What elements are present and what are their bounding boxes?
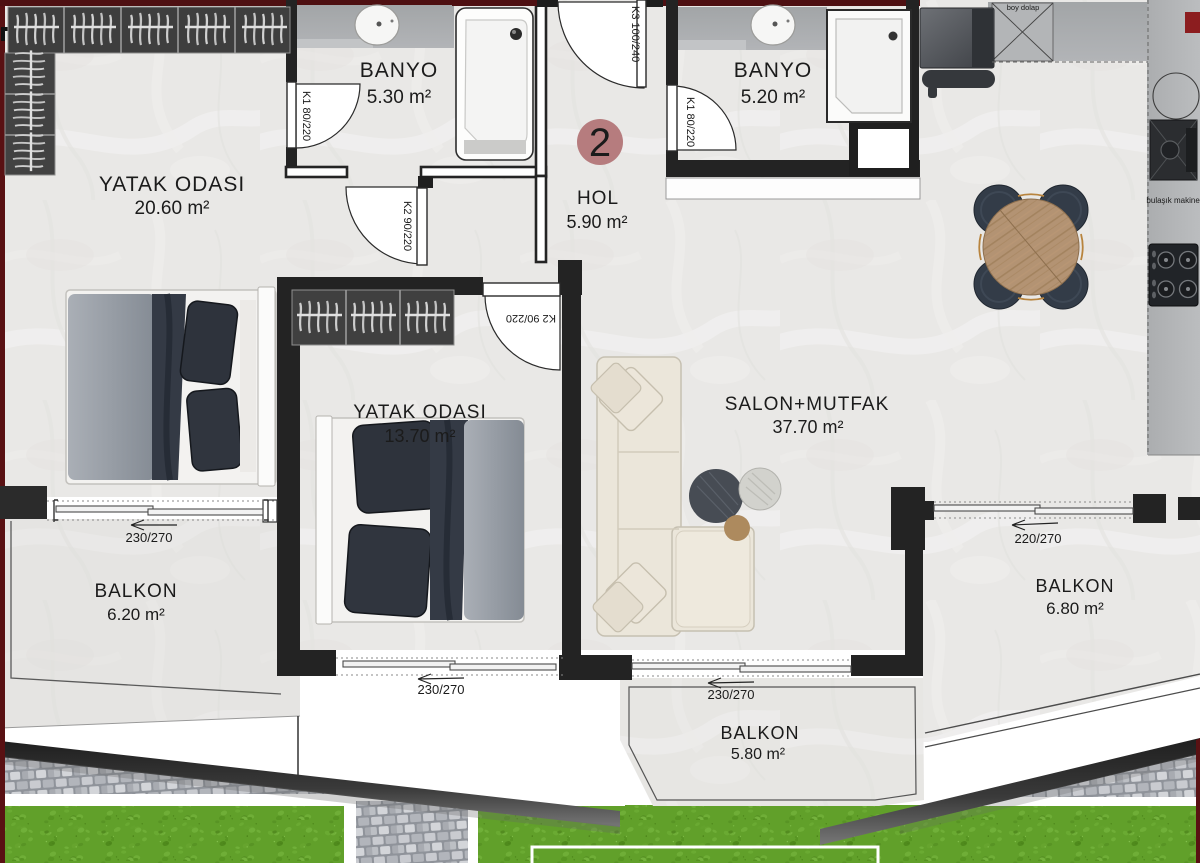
svg-text:5.30 m²: 5.30 m²: [367, 87, 431, 108]
svg-text:230/270: 230/270: [126, 530, 173, 545]
svg-text:K3 100/240: K3 100/240: [629, 6, 641, 62]
svg-text:5.80 m²: 5.80 m²: [731, 746, 786, 763]
svg-text:BALKON: BALKON: [720, 723, 799, 743]
svg-text:6.20 m²: 6.20 m²: [107, 605, 165, 624]
svg-text:37.70 m²: 37.70 m²: [772, 417, 843, 437]
svg-text:BANYO: BANYO: [734, 59, 813, 82]
svg-text:YATAK ODASI: YATAK ODASI: [353, 402, 486, 423]
svg-text:2: 2: [589, 121, 611, 165]
svg-text:K1 80/220: K1 80/220: [684, 97, 696, 147]
svg-text:5.20 m²: 5.20 m²: [741, 87, 805, 108]
svg-text:6.80 m²: 6.80 m²: [1046, 599, 1104, 618]
svg-text:230/270: 230/270: [708, 687, 755, 702]
svg-text:HOL: HOL: [577, 188, 619, 209]
svg-text:BALKON: BALKON: [1035, 576, 1114, 596]
svg-text:BALKON: BALKON: [94, 581, 177, 602]
svg-text:boy dolap: boy dolap: [1007, 3, 1040, 12]
svg-text:20.60 m²: 20.60 m²: [135, 198, 210, 219]
svg-text:YATAK ODASI: YATAK ODASI: [99, 173, 245, 196]
svg-text:K1 80/220: K1 80/220: [300, 91, 312, 141]
svg-text:230/270: 230/270: [418, 682, 465, 697]
svg-text:220/270: 220/270: [1015, 531, 1062, 546]
svg-text:K2 90/220: K2 90/220: [506, 312, 556, 324]
svg-text:5.90 m²: 5.90 m²: [566, 212, 627, 232]
svg-text:bulaşık makinesi: bulaşık makinesi: [1146, 196, 1200, 205]
svg-text:K2 90/220: K2 90/220: [401, 201, 413, 251]
svg-text:BANYO: BANYO: [360, 59, 439, 82]
svg-text:13.70 m²: 13.70 m²: [384, 426, 455, 446]
svg-text:SALON+MUTFAK: SALON+MUTFAK: [725, 394, 890, 415]
